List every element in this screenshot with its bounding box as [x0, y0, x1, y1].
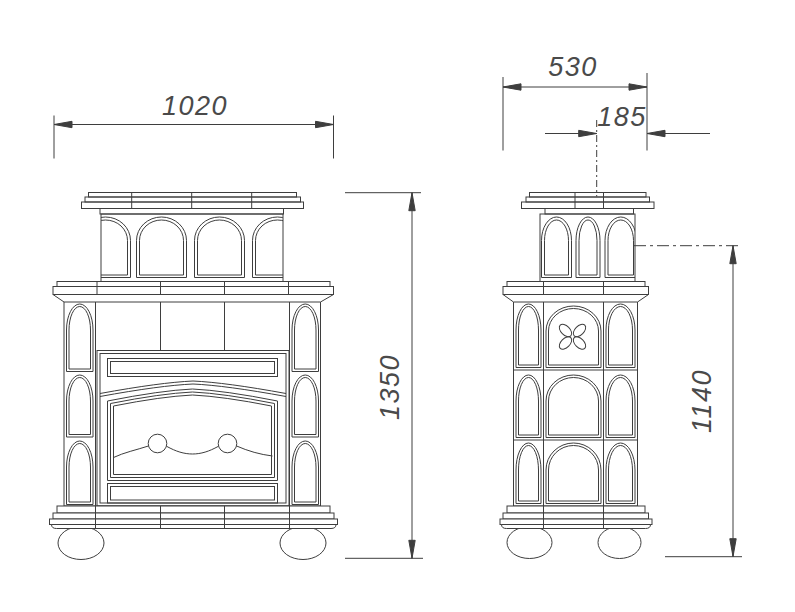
- dimension-value: 1020: [162, 91, 228, 121]
- arched-tile: [69, 378, 91, 435]
- arched-tile: [67, 375, 94, 437]
- front-right-pilaster-tiles: [292, 304, 319, 504]
- side-body: [514, 302, 638, 506]
- cornice-band: [530, 193, 647, 198]
- arrowhead: [316, 121, 334, 127]
- arrowhead: [629, 84, 647, 90]
- plinth-band: [503, 513, 649, 519]
- front-mantel-shelf: [53, 282, 334, 303]
- arched-panel: [253, 217, 303, 278]
- arched-tile: [292, 304, 319, 371]
- arched-panel: [605, 217, 637, 278]
- arched-tile: [295, 307, 317, 370]
- arched-tile: [546, 306, 601, 368]
- arched-panel: [140, 220, 184, 275]
- lintel-panel-inner: [111, 362, 275, 374]
- arched-tile: [67, 441, 94, 505]
- dimension-flue-height: 1140: [634, 246, 742, 557]
- arched-tile: [67, 304, 94, 371]
- arched-tile: [549, 446, 599, 502]
- door-glass-edge: [114, 395, 272, 475]
- arched-tile: [609, 307, 633, 366]
- arched-panel: [198, 220, 242, 275]
- arched-panel: [195, 217, 245, 278]
- arched-tile: [609, 446, 633, 502]
- arched-tile: [516, 443, 541, 504]
- arrowhead: [730, 246, 736, 264]
- shelf-band: [507, 282, 645, 287]
- side-frieze: [540, 214, 637, 282]
- arrowhead: [54, 121, 72, 127]
- door-ornament-wave: [237, 446, 273, 456]
- cornice-band: [526, 197, 650, 202]
- bun-foot: [58, 527, 104, 560]
- frieze-panels: [81, 217, 303, 278]
- side-crown-cornice: [522, 193, 655, 215]
- arched-tile: [546, 443, 601, 504]
- shelf-chamfer: [503, 295, 649, 303]
- dimension-value: 530: [548, 52, 598, 82]
- body-outline: [514, 302, 638, 506]
- firebox: [97, 351, 289, 507]
- side-tiles: [516, 304, 635, 503]
- arched-tile: [292, 375, 319, 437]
- arched-tile: [606, 304, 635, 367]
- cornice-band: [89, 193, 297, 198]
- bun-foot: [280, 527, 326, 560]
- arched-tile: [519, 307, 539, 366]
- front-crown-cornice: [82, 193, 304, 215]
- arrowhead: [409, 193, 415, 211]
- front-left-pilaster-tiles: [67, 304, 94, 504]
- arched-tile: [609, 378, 633, 436]
- arched-tile: [606, 443, 635, 504]
- arched-panel: [608, 220, 634, 275]
- arched-panel: [81, 217, 131, 277]
- dimension-value: 1350: [375, 354, 405, 420]
- plinth-band: [500, 519, 652, 525]
- cornice-band: [85, 197, 301, 202]
- arrowhead: [409, 540, 415, 558]
- arched-panel: [137, 217, 187, 278]
- drawing-root: 1020 530 185: [50, 52, 743, 560]
- cornice-soffit: [545, 209, 634, 215]
- arched-panel: [84, 220, 128, 275]
- front-frieze: [81, 214, 303, 282]
- side-elevation: [500, 193, 654, 559]
- rosette-petal: [557, 322, 574, 339]
- arched-tile: [519, 378, 539, 436]
- plinth-band: [507, 506, 645, 513]
- arched-tile: [549, 378, 599, 436]
- cornice-band: [522, 202, 655, 209]
- hearth-strip-inner: [111, 487, 275, 501]
- body-outline: [64, 302, 321, 506]
- arched-panel: [256, 220, 300, 275]
- front-body: [64, 302, 321, 506]
- arched-tile: [292, 441, 319, 505]
- side-plinth: [500, 506, 652, 529]
- arched-tile: [519, 446, 539, 502]
- arrowhead: [647, 130, 665, 136]
- front-feet: [58, 527, 326, 560]
- rosette-petal: [571, 335, 588, 352]
- dimensions: 1020 530 185: [54, 52, 742, 558]
- arched-panel: [576, 217, 600, 278]
- frieze-panels: [542, 217, 637, 278]
- shelf-band: [53, 287, 334, 295]
- dimension-overall-height: 1350: [345, 193, 423, 559]
- arched-tile: [516, 375, 541, 437]
- plinth-band: [50, 519, 338, 525]
- arched-panel: [579, 220, 597, 275]
- door-knob: [218, 434, 237, 453]
- door-knob: [148, 434, 167, 453]
- bun-foot: [598, 527, 641, 559]
- side-feet: [507, 527, 641, 559]
- arrowhead: [730, 539, 736, 557]
- rosette-petal: [557, 335, 574, 352]
- door-ornament-wave: [167, 446, 219, 454]
- front-plinth: [50, 506, 338, 529]
- fireplace-elevation-drawing: 1020 530 185: [0, 0, 795, 612]
- arched-tile: [295, 443, 317, 502]
- front-elevation: [50, 193, 338, 560]
- dimension-front-width: 1020: [54, 91, 334, 159]
- bun-foot: [507, 527, 552, 559]
- shelf-chamfer: [53, 295, 334, 303]
- arched-tile: [295, 378, 317, 435]
- side-mantel-shelf: [503, 282, 649, 303]
- arched-tile: [549, 309, 599, 366]
- arrowhead: [579, 130, 597, 136]
- cornice-band: [82, 202, 304, 209]
- dimension-value: 185: [597, 102, 647, 132]
- arched-tile: [546, 375, 601, 437]
- arrowhead: [503, 84, 521, 90]
- shelf-band: [57, 282, 330, 287]
- door-frame-mid: [111, 392, 275, 478]
- plinth-base: [502, 525, 651, 529]
- frieze-outline: [540, 214, 635, 282]
- drawing-sheet: 1020 530 185: [0, 0, 795, 612]
- arched-panel: [545, 220, 569, 275]
- door-ornament-wave: [114, 446, 149, 458]
- arched-tile: [606, 375, 635, 437]
- arched-tile: [69, 307, 91, 370]
- plinth-base: [52, 525, 337, 529]
- rosette-petal: [571, 322, 588, 339]
- dimension-value: 1140: [687, 369, 717, 433]
- arched-tile: [516, 304, 541, 367]
- arched-panel: [542, 217, 572, 278]
- rosette-ornament: [557, 322, 588, 351]
- arched-tile: [69, 443, 91, 502]
- shelf-band: [503, 287, 649, 295]
- dimension-flue-offset: 185: [545, 102, 710, 197]
- cornice-soffit: [100, 209, 284, 215]
